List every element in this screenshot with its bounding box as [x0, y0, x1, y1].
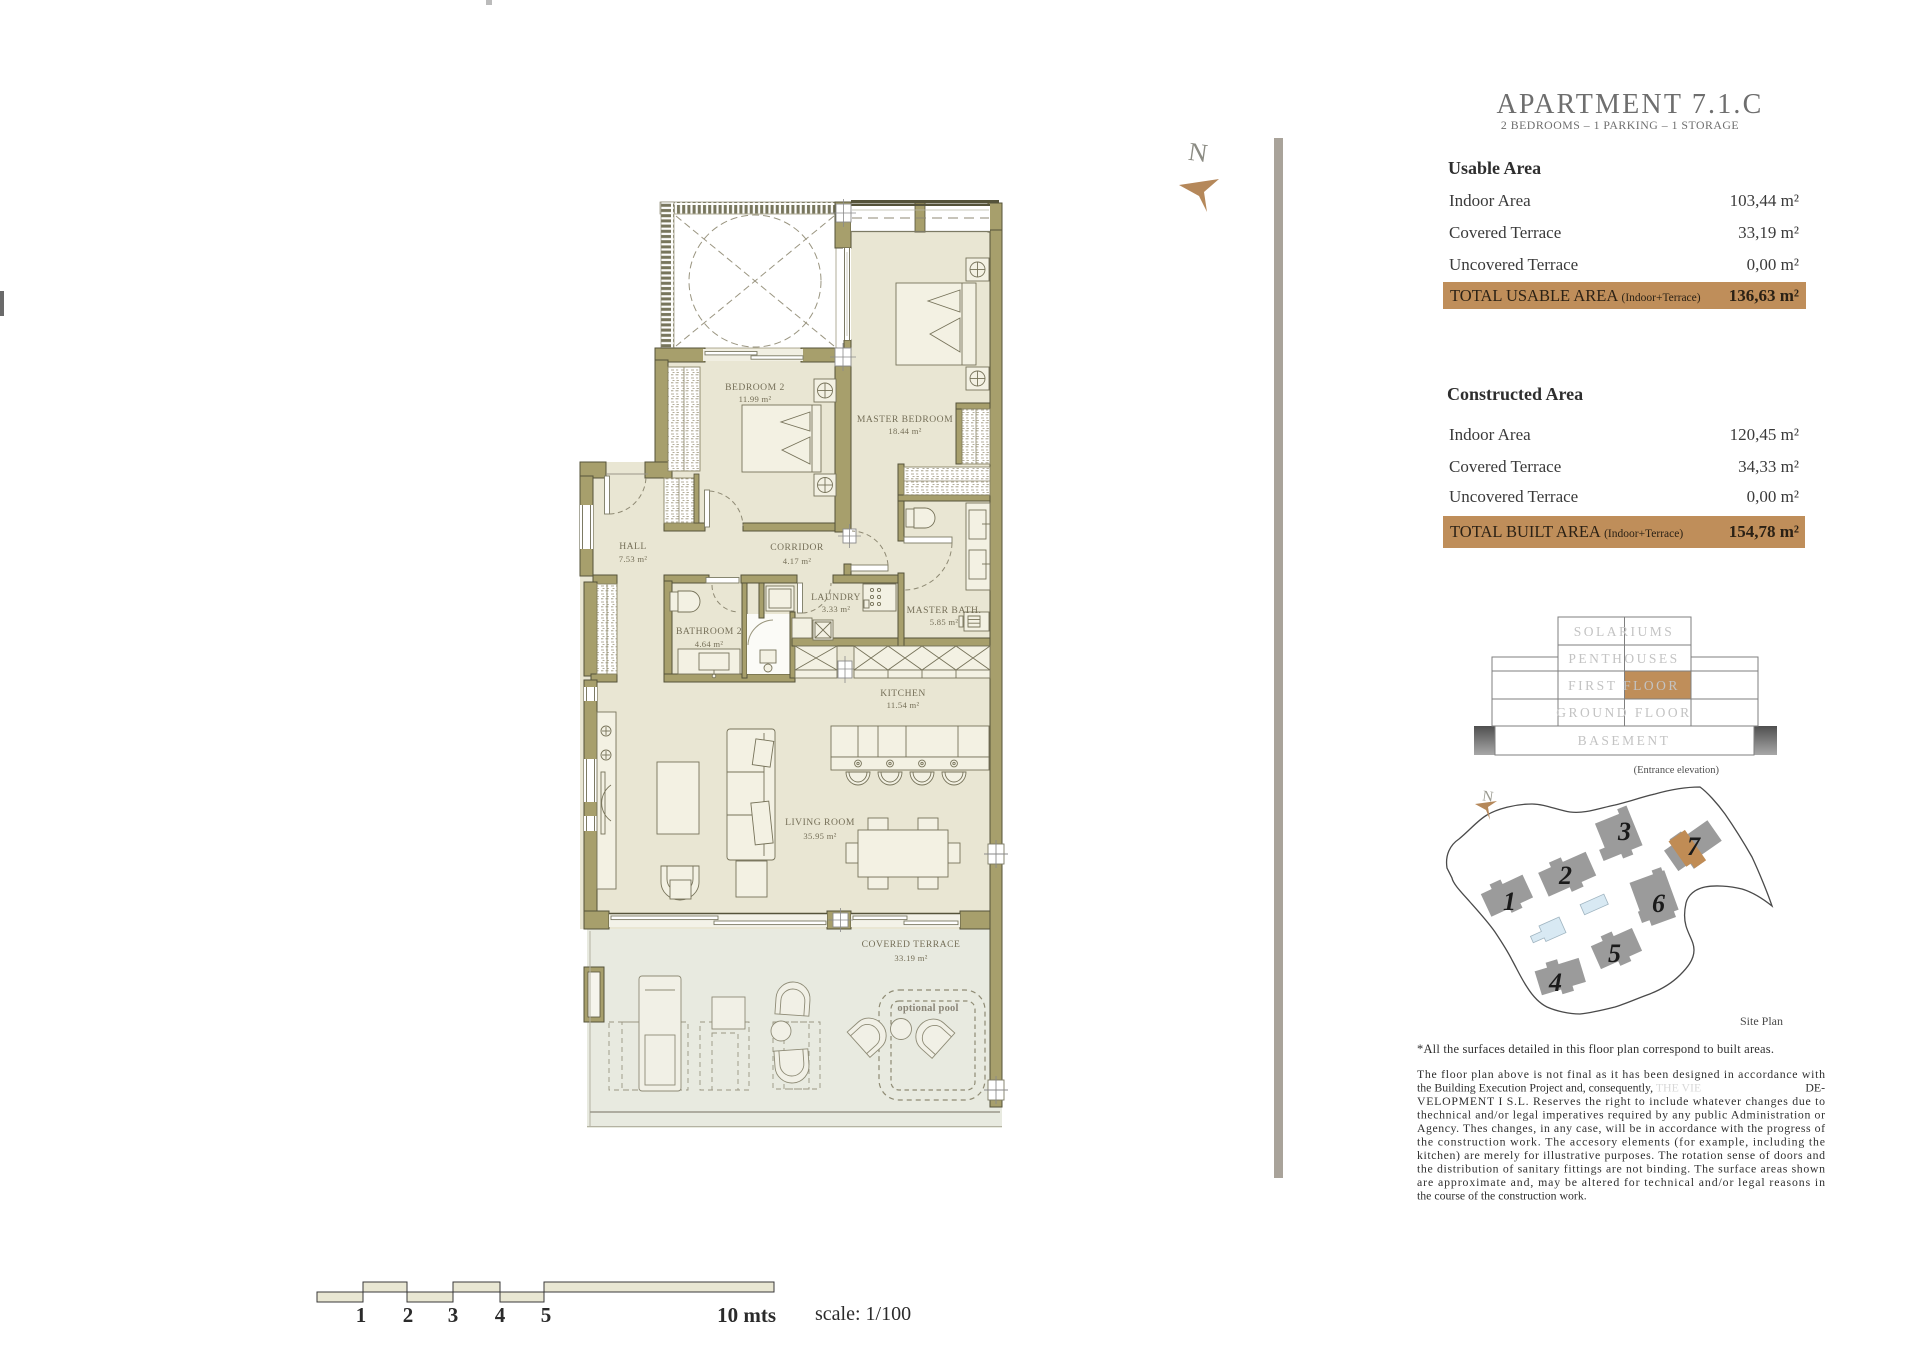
svg-text:MASTER BATH.: MASTER BATH.	[907, 605, 982, 616]
svg-text:Uncovered Terrace: Uncovered Terrace	[1449, 255, 1578, 274]
svg-text:KITCHEN: KITCHEN	[880, 688, 926, 699]
svg-text:33.19 m²: 33.19 m²	[894, 953, 927, 963]
svg-text:0,00 m²: 0,00 m²	[1747, 255, 1799, 274]
svg-text:3: 3	[448, 1303, 459, 1327]
svg-text:154,78 m²: 154,78 m²	[1729, 522, 1799, 541]
svg-text:*All the surfaces detailed in: *All the surfaces detailed in this floor…	[1417, 1042, 1774, 1056]
svg-text:6: 6	[1652, 889, 1665, 918]
svg-text:7: 7	[1687, 832, 1701, 861]
svg-text:BEDROOM 2: BEDROOM 2	[725, 382, 785, 393]
svg-text:BASEMENT: BASEMENT	[1578, 733, 1671, 748]
svg-text:33,19 m²: 33,19 m²	[1738, 223, 1799, 242]
svg-text:scale: 1/100: scale: 1/100	[815, 1303, 911, 1325]
svg-text:CORRIDOR: CORRIDOR	[770, 542, 824, 553]
svg-text:Indoor Area: Indoor Area	[1449, 191, 1531, 210]
svg-text:Indoor Area: Indoor Area	[1449, 425, 1531, 444]
svg-text:Site Plan: Site Plan	[1740, 1014, 1783, 1028]
svg-text:FIRST FLOOR: FIRST FLOOR	[1568, 678, 1680, 693]
svg-text:thechnical and/or legal impera: thechnical and/or legal imperatives requ…	[1417, 1108, 1825, 1122]
svg-text:LAUNDRY: LAUNDRY	[811, 592, 861, 603]
svg-text:34,33 m²: 34,33 m²	[1738, 457, 1799, 476]
svg-text:1: 1	[1503, 887, 1516, 916]
svg-text:2: 2	[1558, 861, 1572, 890]
svg-text:the construction work. The acc: the construction work. The accesory elem…	[1417, 1135, 1825, 1149]
svg-text:SOLARIUMS: SOLARIUMS	[1574, 624, 1675, 639]
svg-text:APARTMENT 7.1.C: APARTMENT 7.1.C	[1496, 89, 1763, 120]
svg-text:Covered Terrace: Covered Terrace	[1449, 457, 1561, 476]
svg-text:4.17 m²: 4.17 m²	[783, 556, 812, 566]
svg-text:3.33 m²: 3.33 m²	[822, 604, 851, 614]
svg-text:2: 2	[403, 1303, 414, 1327]
svg-text:PENTHOUSES: PENTHOUSES	[1568, 651, 1679, 666]
svg-text:103,44 m²: 103,44 m²	[1730, 191, 1799, 210]
svg-text:0,00 m²: 0,00 m²	[1747, 487, 1799, 506]
svg-text:GROUND FLOOR: GROUND FLOOR	[1556, 705, 1691, 720]
svg-text:COVERED TERRACE: COVERED TERRACE	[862, 939, 961, 950]
svg-text:4.64 m²: 4.64 m²	[695, 639, 724, 649]
svg-text:VELOPMENT I S.L. Reserves the: VELOPMENT I S.L. Reserves the right to i…	[1417, 1094, 1825, 1108]
svg-text:120,45 m²: 120,45 m²	[1730, 425, 1799, 444]
svg-text:35.95 m²: 35.95 m²	[803, 831, 836, 841]
svg-text:4: 4	[1548, 968, 1562, 997]
svg-text:11.54 m²: 11.54 m²	[887, 700, 920, 710]
svg-text:the course of the construction: the course of the construction work.	[1417, 1189, 1587, 1203]
svg-text:optional pool: optional pool	[897, 1003, 958, 1014]
svg-text:1: 1	[356, 1303, 367, 1327]
svg-text:(Entrance elevation): (Entrance elevation)	[1634, 765, 1720, 776]
svg-text:10 mts: 10 mts	[717, 1303, 776, 1327]
svg-text:Usable Area: Usable Area	[1448, 158, 1541, 178]
svg-text:HALL: HALL	[619, 541, 647, 552]
svg-text:5: 5	[541, 1303, 552, 1327]
svg-text:are approximate and, may be al: are approximate and, may be altered for …	[1417, 1175, 1825, 1189]
svg-text:Constructed Area: Constructed Area	[1447, 384, 1583, 404]
svg-text:BATHROOM 2: BATHROOM 2	[676, 626, 742, 637]
svg-text:LIVING ROOM: LIVING ROOM	[785, 817, 855, 828]
svg-text:7.53 m²: 7.53 m²	[619, 554, 648, 564]
svg-text:Covered Terrace: Covered Terrace	[1449, 223, 1561, 242]
svg-text:136,63 m²: 136,63 m²	[1729, 286, 1799, 305]
svg-text:5: 5	[1608, 939, 1621, 968]
svg-text:5.85 m²: 5.85 m²	[930, 617, 959, 627]
svg-text:2 BEDROOMS – 1 PARKING – 1 STO: 2 BEDROOMS – 1 PARKING – 1 STORAGE	[1501, 118, 1739, 132]
svg-text:Agency. Thes changes, in any c: Agency. Thes changes, in any case, will …	[1417, 1121, 1825, 1135]
svg-text:4: 4	[495, 1303, 506, 1327]
svg-text:MASTER BEDROOM: MASTER BEDROOM	[857, 414, 953, 425]
svg-text:The floor plan above is not fi: The floor plan above is not final as it …	[1417, 1067, 1825, 1081]
svg-text:the distribution of sanitary f: the distribution of sanitary fittings ar…	[1417, 1162, 1825, 1176]
svg-text:kitchen) are merely for illust: kitchen) are merely for illustrative pur…	[1417, 1148, 1825, 1162]
svg-text:3: 3	[1617, 817, 1631, 846]
svg-text:Uncovered Terrace: Uncovered Terrace	[1449, 487, 1578, 506]
svg-text:11.99 m²: 11.99 m²	[739, 394, 772, 404]
svg-text:18.44 m²: 18.44 m²	[888, 426, 921, 436]
